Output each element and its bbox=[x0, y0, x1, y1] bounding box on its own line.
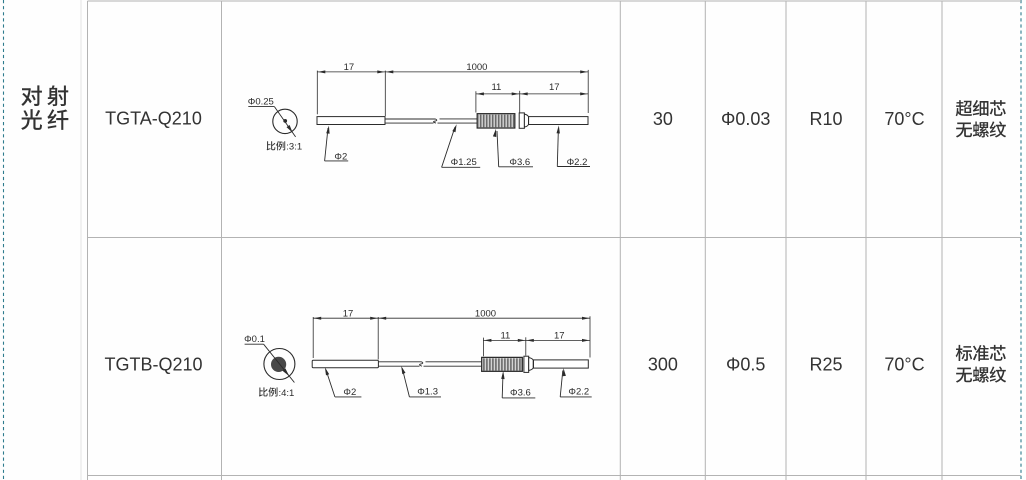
svg-text:Φ0.03: Φ0.03 bbox=[721, 109, 770, 129]
svg-text:70°C: 70°C bbox=[884, 355, 924, 375]
svg-text:17: 17 bbox=[343, 308, 354, 319]
svg-text:1000: 1000 bbox=[466, 62, 487, 73]
svg-text:Φ0.5: Φ0.5 bbox=[726, 355, 765, 375]
svg-text:Φ0.25: Φ0.25 bbox=[248, 96, 274, 107]
svg-text:Φ2: Φ2 bbox=[334, 151, 347, 162]
svg-text::4:1: :4:1 bbox=[279, 388, 295, 399]
svg-text:17: 17 bbox=[554, 331, 565, 342]
svg-text:Φ2.2: Φ2.2 bbox=[567, 157, 588, 168]
svg-text:11: 11 bbox=[500, 331, 510, 342]
svg-text:Φ0.1: Φ0.1 bbox=[244, 334, 265, 345]
svg-text::3:1: :3:1 bbox=[286, 142, 302, 153]
svg-text:17: 17 bbox=[549, 82, 560, 93]
svg-text:11: 11 bbox=[491, 82, 501, 93]
svg-text:Φ1.25: Φ1.25 bbox=[451, 157, 477, 168]
svg-text:300: 300 bbox=[648, 355, 678, 375]
svg-text:TGTA-Q210: TGTA-Q210 bbox=[105, 108, 202, 128]
svg-text:R25: R25 bbox=[809, 355, 842, 375]
svg-text:1000: 1000 bbox=[475, 308, 496, 319]
svg-text:Φ2.2: Φ2.2 bbox=[568, 386, 589, 397]
svg-text:TGTB-Q210: TGTB-Q210 bbox=[104, 355, 202, 375]
svg-text:Φ3.6: Φ3.6 bbox=[510, 388, 531, 399]
svg-text:Φ1.3: Φ1.3 bbox=[417, 387, 438, 398]
svg-text:30: 30 bbox=[653, 109, 673, 129]
svg-text:17: 17 bbox=[344, 62, 355, 73]
svg-text:Φ3.6: Φ3.6 bbox=[509, 157, 530, 168]
svg-text:70°C: 70°C bbox=[884, 109, 924, 129]
svg-text:R10: R10 bbox=[809, 109, 842, 129]
svg-text:Φ2: Φ2 bbox=[343, 387, 356, 398]
